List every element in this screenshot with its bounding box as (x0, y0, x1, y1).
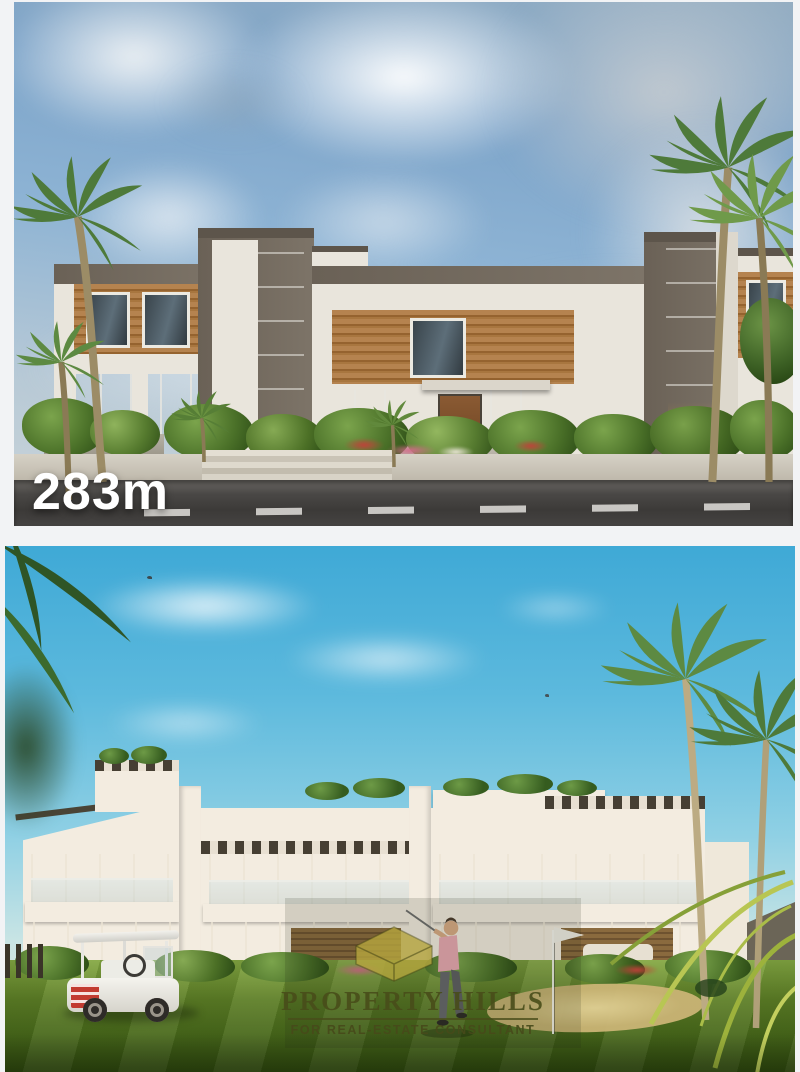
pergola-strip (201, 841, 431, 854)
garden-fence (5, 944, 49, 978)
area-label: 283m (32, 462, 169, 522)
roof-plants (99, 748, 129, 764)
palm-tree (684, 122, 793, 482)
roof-plants (131, 746, 167, 764)
bird (545, 694, 549, 697)
slab (25, 902, 179, 922)
cloud-wisp (245, 626, 525, 692)
house-icon (351, 924, 437, 984)
corner-palm-fronds (5, 546, 201, 700)
roof-plants (305, 782, 349, 800)
flowers-red (514, 440, 548, 452)
balcony-glass (31, 878, 173, 904)
mid-wing-parapet (312, 266, 646, 284)
roof-box-cap (312, 246, 368, 252)
real-estate-collage: { "page": { "background": "#f2f3f5", "de… (0, 0, 800, 1072)
roof-plants (443, 778, 489, 796)
watermark-rule (288, 1018, 538, 1020)
cloud-wisp (75, 696, 295, 750)
roof-plants (497, 774, 553, 794)
cart-wheel (145, 998, 169, 1022)
exterior-photo-2: PROPERTY HILLS FOR REAL-ESTATE CONSULTAN… (5, 546, 795, 1072)
small-palm (154, 352, 254, 462)
center-tower-cap (198, 228, 314, 238)
small-palm (344, 362, 444, 467)
cloud (144, 52, 324, 152)
exterior-photo-1: 283m (14, 2, 793, 526)
roof-plants (353, 778, 405, 798)
cart-steering-wheel (123, 954, 146, 977)
cart-wheel (83, 998, 107, 1022)
watermark-tagline: FOR REAL-ESTATE CONSULTANT (253, 1023, 573, 1037)
pillar (179, 786, 201, 976)
watermark-brand: PROPERTY HILLS (253, 986, 573, 1017)
